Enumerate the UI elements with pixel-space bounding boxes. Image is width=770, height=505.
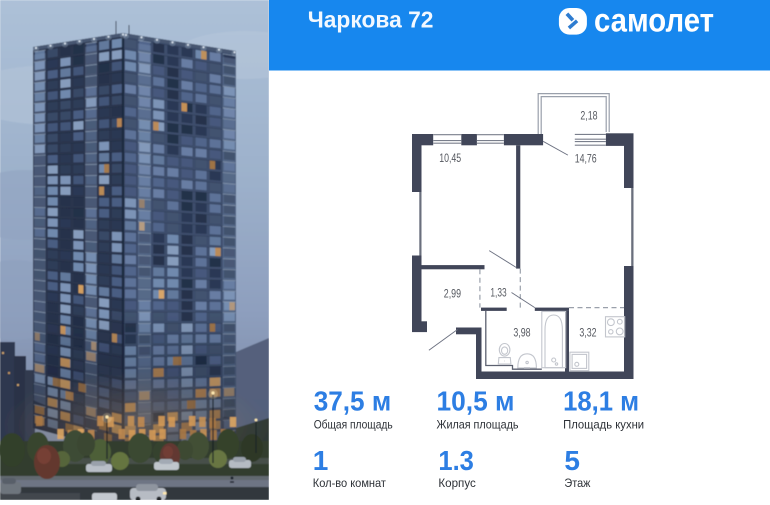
- svg-text:10,45: 10,45: [439, 151, 461, 165]
- svg-text:1.3: 1.3: [438, 445, 474, 476]
- svg-text:Этаж: Этаж: [564, 476, 591, 490]
- svg-text:3,98: 3,98: [513, 326, 531, 340]
- svg-text:Общая площадь: Общая площадь: [314, 417, 393, 431]
- svg-text:самолет: самолет: [594, 2, 714, 39]
- svg-text:Чаркова 72: Чаркова 72: [308, 7, 434, 33]
- svg-text:3,32: 3,32: [579, 326, 596, 340]
- svg-text:Жилая площадь: Жилая площадь: [437, 417, 519, 431]
- svg-text:37,5 м: 37,5 м: [314, 386, 392, 417]
- svg-text:10,5 м: 10,5 м: [437, 386, 515, 417]
- svg-text:14,76: 14,76: [575, 152, 597, 166]
- svg-text:1: 1: [313, 445, 329, 476]
- svg-text:1,33: 1,33: [490, 286, 507, 300]
- svg-text:Площадь кухни: Площадь кухни: [563, 417, 644, 431]
- svg-text:2,18: 2,18: [580, 109, 598, 123]
- svg-text:18,1 м: 18,1 м: [563, 386, 639, 417]
- svg-text:Кол-во комнат: Кол-во комнат: [313, 476, 387, 490]
- svg-text:2,99: 2,99: [444, 287, 461, 301]
- svg-text:Корпус: Корпус: [438, 476, 475, 490]
- svg-text:5: 5: [564, 445, 580, 476]
